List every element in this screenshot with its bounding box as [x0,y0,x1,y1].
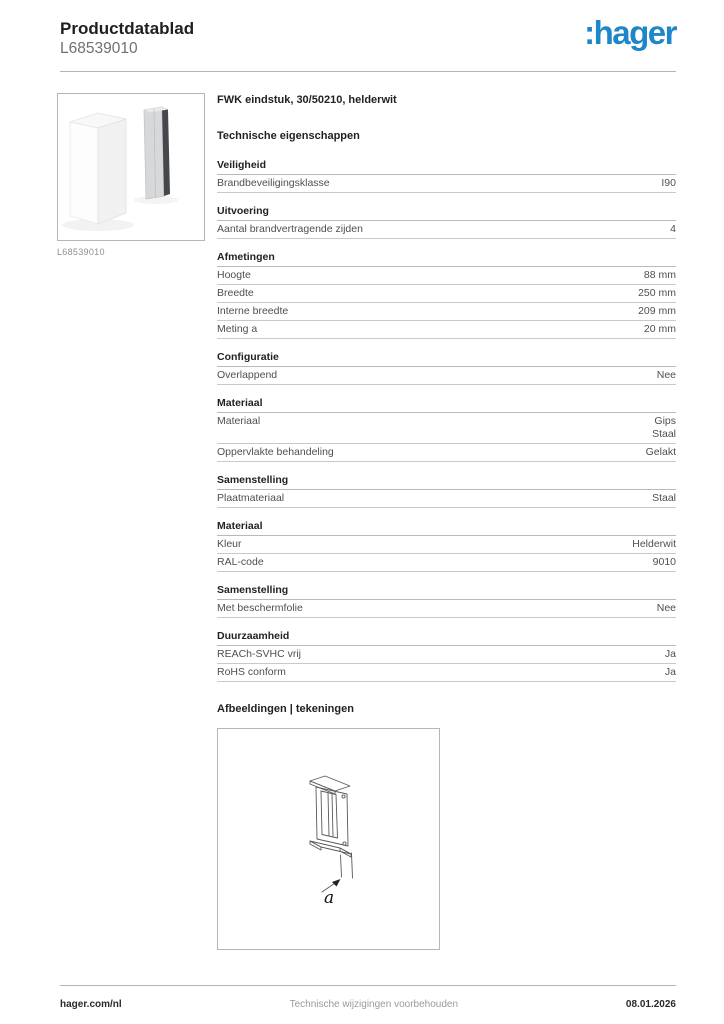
spec-section-title: Samenstelling [217,584,676,600]
spec-row-value: Ja [665,648,676,661]
spec-row-value: 9010 [653,556,676,569]
spec-row-label: REACh-SVHC vrij [217,648,301,661]
footer-website: hager.com/nl [60,999,122,1010]
spec-row-value: Nee [657,369,676,382]
spec-row-value: 88 mm [644,269,676,282]
spec-section: Materiaal Kleur Helderwit RAL-code 9010 [217,520,676,572]
spec-section: Afmetingen Hoogte 88 mm Breedte 250 mm I… [217,251,676,339]
footer-disclaimer: Technische wijzigingen voorbehouden [290,999,458,1010]
spec-rows: Kleur Helderwit RAL-code 9010 [217,536,676,572]
spec-section-title: Materiaal [217,397,676,413]
spec-row-label: Breedte [217,287,254,300]
spec-section-title: Configuratie [217,351,676,367]
spec-row-value: Ja [665,666,676,679]
spec-rows: Materiaal GipsStaal Oppervlakte behandel… [217,413,676,462]
technical-drawing: a [217,728,440,950]
spec-row-value: 250 mm [638,287,676,300]
spec-row: Materiaal GipsStaal [217,413,676,444]
spec-row: Met beschermfolie Nee [217,600,676,618]
dimension-sketch: a [218,729,439,949]
spec-section: Uitvoering Aantal brandvertragende zijde… [217,205,676,239]
spec-row: Brandbeveiligingsklasse I90 [217,175,676,193]
spec-row-value: 4 [670,223,676,236]
spec-section: Veiligheid Brandbeveiligingsklasse I90 [217,159,676,193]
footer-date: 08.01.2026 [626,999,676,1010]
spec-rows: Hoogte 88 mm Breedte 250 mm Interne bree… [217,267,676,339]
spec-row: Oppervlakte behandeling Gelakt [217,444,676,462]
spec-row-value: Staal [652,492,676,505]
spec-row-value: Gelakt [646,446,676,459]
spec-section: Samenstelling Plaatmateriaal Staal [217,474,676,508]
spec-row-value: 20 mm [644,323,676,336]
spec-row-label: Plaatmateriaal [217,492,284,505]
spec-row: Plaatmateriaal Staal [217,490,676,508]
spec-row-label: Meting a [217,323,257,336]
spec-section: Configuratie Overlappend Nee [217,351,676,385]
spec-section-title: Afmetingen [217,251,676,267]
spec-row-label: Materiaal [217,415,260,428]
spec-section-title: Veiligheid [217,159,676,175]
product-image-caption: L68539010 [57,247,205,257]
spec-section: Duurzaamheid REACh-SVHC vrij Ja RoHS con… [217,630,676,682]
spec-row-label: Overlappend [217,369,277,382]
spec-row-label: Met beschermfolie [217,602,303,615]
page-footer: hager.com/nl Technische wijzigingen voor… [60,985,676,1010]
spec-row: REACh-SVHC vrij Ja [217,646,676,664]
spec-row-label: Oppervlakte behandeling [217,446,334,459]
spec-section-title: Materiaal [217,520,676,536]
spec-row-label: RAL-code [217,556,264,569]
product-title: FWK eindstuk, 30/50210, helderwit [217,90,676,106]
drawing-dimension-label: a [324,888,334,908]
spec-row: Overlappend Nee [217,367,676,385]
spec-row-label: Brandbeveiligingsklasse [217,177,330,190]
spec-row: Hoogte 88 mm [217,267,676,285]
spec-section: Samenstelling Met beschermfolie Nee [217,584,676,618]
spec-rows: Overlappend Nee [217,367,676,385]
spec-row-value: GipsStaal [652,415,676,441]
spec-section-title: Samenstelling [217,474,676,490]
spec-row-label: RoHS conform [217,666,286,679]
product-image-column: L68539010 [57,93,205,257]
spec-row: Kleur Helderwit [217,536,676,554]
spec-rows: Brandbeveiligingsklasse I90 [217,175,676,193]
spec-row: Interne breedte 209 mm [217,303,676,321]
tech-properties-heading: Technische eigenschappen [217,130,676,142]
spec-row-value: Helderwit [632,538,676,551]
spec-row: RoHS conform Ja [217,664,676,682]
spec-sections: Veiligheid Brandbeveiligingsklasse I90 U… [217,159,676,682]
hager-logo: :hager [584,16,676,49]
spec-row: Meting a 20 mm [217,321,676,339]
spec-section-title: Duurzaamheid [217,630,676,646]
spec-column: FWK eindstuk, 30/50210, helderwit Techni… [217,90,676,950]
product-image [57,93,205,241]
spec-row-value: Nee [657,602,676,615]
spec-row-label: Kleur [217,538,242,551]
spec-row: Aantal brandvertragende zijden 4 [217,221,676,239]
spec-rows: Met beschermfolie Nee [217,600,676,618]
spec-rows: Plaatmateriaal Staal [217,490,676,508]
spec-section-title: Uitvoering [217,205,676,221]
spec-row: RAL-code 9010 [217,554,676,572]
spec-row: Breedte 250 mm [217,285,676,303]
spec-row-label: Hoogte [217,269,251,282]
spec-row-value: I90 [661,177,676,190]
spec-row-label: Interne breedte [217,305,288,318]
spec-row-label: Aantal brandvertragende zijden [217,223,363,236]
page-header: Productdatablad L68539010 :hager [60,0,676,72]
spec-section: Materiaal Materiaal GipsStaal Oppervlakt… [217,397,676,462]
spec-rows: REACh-SVHC vrij Ja RoHS conform Ja [217,646,676,682]
images-section-heading: Afbeeldingen | tekeningen [217,703,676,715]
spec-row-value: 209 mm [638,305,676,318]
product-photo-rendering [58,94,204,240]
spec-rows: Aantal brandvertragende zijden 4 [217,221,676,239]
datasheet-page: Productdatablad L68539010 :hager L685390… [0,0,724,1024]
